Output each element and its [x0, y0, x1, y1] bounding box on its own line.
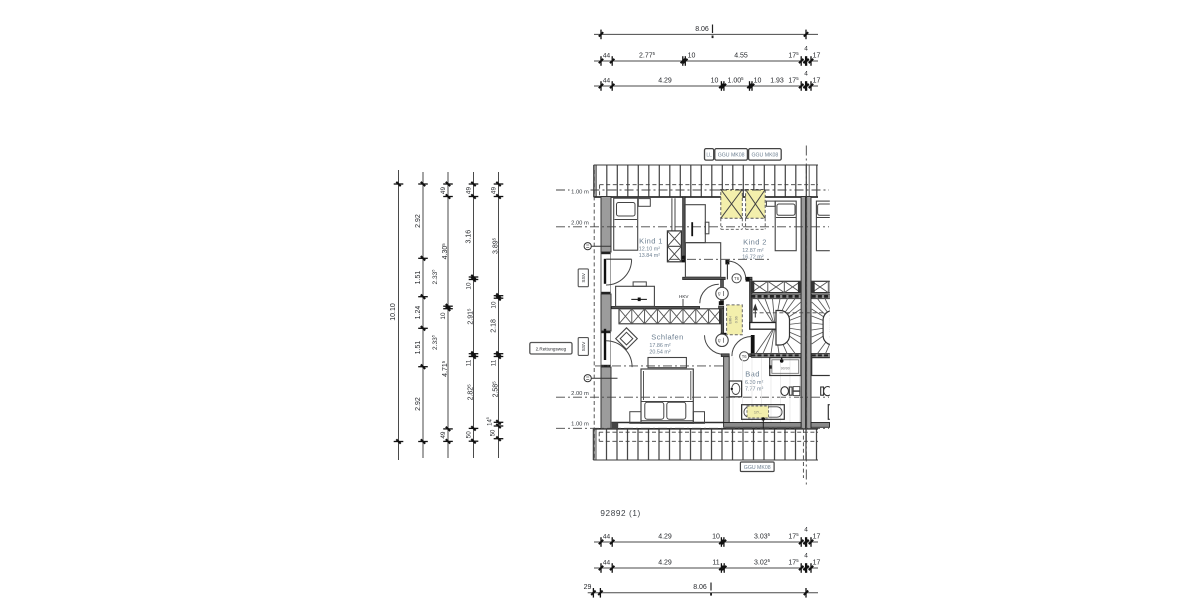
svg-text:6.30 m²: 6.30 m²	[745, 380, 763, 386]
svg-text:4: 4	[804, 71, 808, 78]
svg-text:20.54 m²: 20.54 m²	[649, 349, 670, 355]
svg-text:17: 17	[813, 533, 821, 540]
svg-text:2.00 m: 2.00 m	[571, 221, 589, 227]
svg-text:29: 29	[584, 584, 592, 591]
svg-text:90/90: 90/90	[781, 366, 790, 370]
svg-text:BRH: BRH	[729, 316, 733, 324]
svg-text:92892 (1): 92892 (1)	[600, 509, 640, 518]
svg-text:Schlafen: Schlafen	[651, 333, 683, 342]
svg-text:3.16: 3.16	[465, 230, 472, 244]
svg-text:45: 45	[718, 292, 722, 296]
svg-text:11: 11	[712, 559, 719, 566]
svg-text:2.92: 2.92	[415, 214, 422, 228]
svg-text:11: 11	[490, 359, 497, 366]
svg-text:2.18: 2.18	[490, 319, 497, 333]
svg-text:0.96: 0.96	[735, 316, 739, 323]
svg-text:4.29: 4.29	[658, 559, 672, 566]
svg-text:44: 44	[603, 77, 611, 84]
svg-text:17.86 m²: 17.86 m²	[649, 343, 670, 349]
svg-text:1.00 m: 1.00 m	[571, 189, 589, 195]
svg-text:10: 10	[712, 533, 720, 540]
svg-text:SSV: SSV	[581, 341, 587, 351]
svg-text:8.06: 8.06	[695, 26, 709, 33]
svg-text:2.Rettungsweg: 2.Rettungsweg	[536, 346, 567, 351]
svg-text:4: 4	[804, 46, 808, 53]
svg-text:4.29: 4.29	[658, 77, 672, 84]
svg-text:10: 10	[440, 312, 447, 320]
svg-text:Bad: Bad	[745, 370, 760, 379]
svg-text:17: 17	[813, 559, 821, 566]
svg-text:4: 4	[804, 527, 808, 534]
svg-text:LL: LL	[706, 153, 712, 159]
svg-text:GGU MK08: GGU MK08	[744, 465, 771, 471]
svg-text:49: 49	[440, 431, 447, 439]
svg-text:GGU MK08: GGU MK08	[718, 153, 745, 159]
svg-text:10: 10	[490, 301, 497, 309]
svg-text:49: 49	[440, 187, 447, 195]
svg-text:49: 49	[490, 187, 497, 195]
svg-text:44: 44	[603, 52, 611, 59]
svg-text:10: 10	[465, 282, 472, 290]
svg-text:10: 10	[688, 52, 696, 59]
svg-text:10: 10	[754, 77, 762, 84]
svg-text:HKV: HKV	[679, 294, 689, 299]
svg-text:10.10: 10.10	[390, 303, 397, 321]
svg-text:2.00 m: 2.00 m	[571, 391, 589, 397]
svg-text:1.93: 1.93	[770, 77, 784, 84]
svg-text:44: 44	[603, 533, 611, 540]
svg-text:17: 17	[813, 52, 821, 59]
svg-text:SSV: SSV	[581, 272, 587, 282]
svg-text:4: 4	[804, 553, 808, 560]
svg-text:1.51: 1.51	[415, 271, 422, 285]
svg-text:GGU MK08: GGU MK08	[751, 153, 778, 159]
svg-text:10: 10	[711, 77, 719, 84]
svg-text:44: 44	[603, 559, 611, 566]
svg-text:Kind 1: Kind 1	[639, 237, 663, 246]
svg-text:12.87 m²: 12.87 m²	[742, 248, 763, 254]
svg-text:8.06: 8.06	[693, 584, 707, 591]
svg-text:2.92: 2.92	[415, 397, 422, 411]
svg-text:4.29: 4.29	[658, 533, 672, 540]
svg-text:50: 50	[465, 431, 472, 439]
svg-text:17/...: 17/...	[754, 410, 762, 414]
svg-text:Kind 2: Kind 2	[743, 238, 767, 247]
svg-text:13.84 m²: 13.84 m²	[639, 253, 660, 259]
svg-text:7.77 m²: 7.77 m²	[745, 387, 763, 393]
svg-text:4.55: 4.55	[734, 52, 748, 59]
svg-text:1.51: 1.51	[415, 341, 422, 355]
svg-text:17: 17	[813, 77, 821, 84]
svg-text:12.10 m²: 12.10 m²	[639, 247, 660, 253]
svg-text:1.24: 1.24	[415, 306, 422, 320]
svg-text:16.72 m²: 16.72 m²	[742, 254, 763, 260]
svg-text:1.00 m: 1.00 m	[571, 421, 589, 427]
svg-text:45: 45	[718, 339, 722, 343]
svg-text:T6: T6	[734, 276, 740, 281]
svg-text:49: 49	[465, 187, 472, 195]
svg-text:50: 50	[491, 429, 497, 436]
svg-text:11: 11	[465, 359, 472, 366]
